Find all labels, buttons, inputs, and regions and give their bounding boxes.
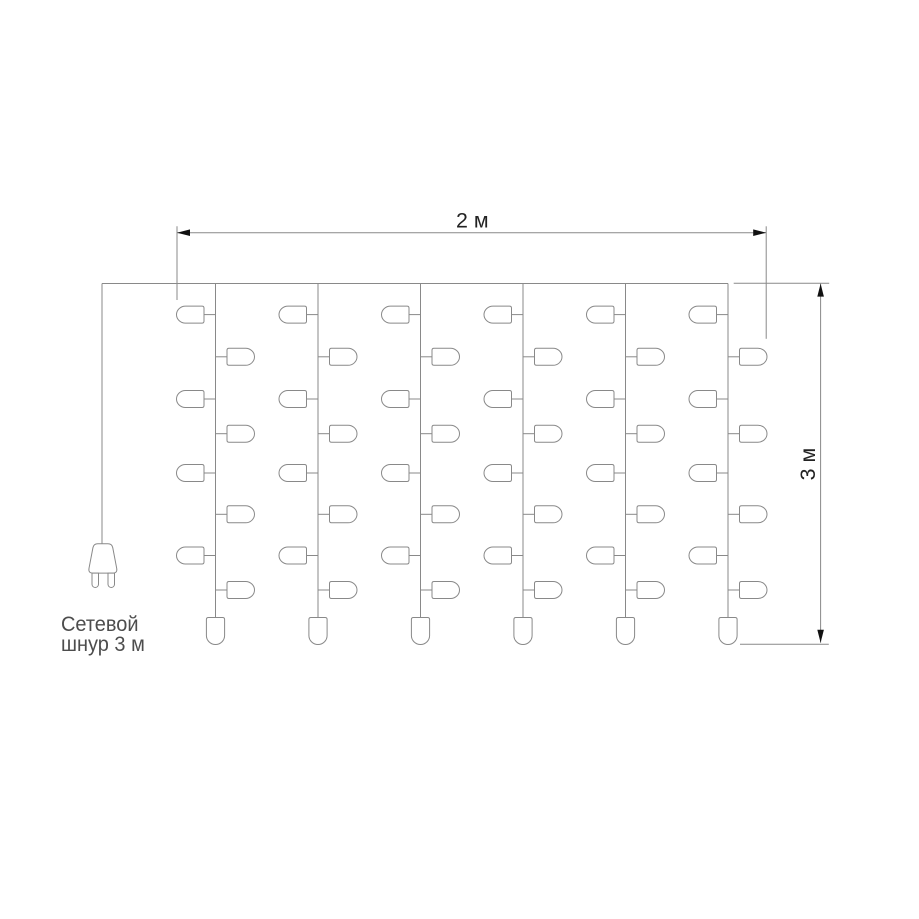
svg-text:шнур 3 м: шнур 3 м: [61, 632, 145, 656]
svg-text:3 м: 3 м: [796, 448, 820, 481]
svg-text:2 м: 2 м: [456, 208, 489, 232]
